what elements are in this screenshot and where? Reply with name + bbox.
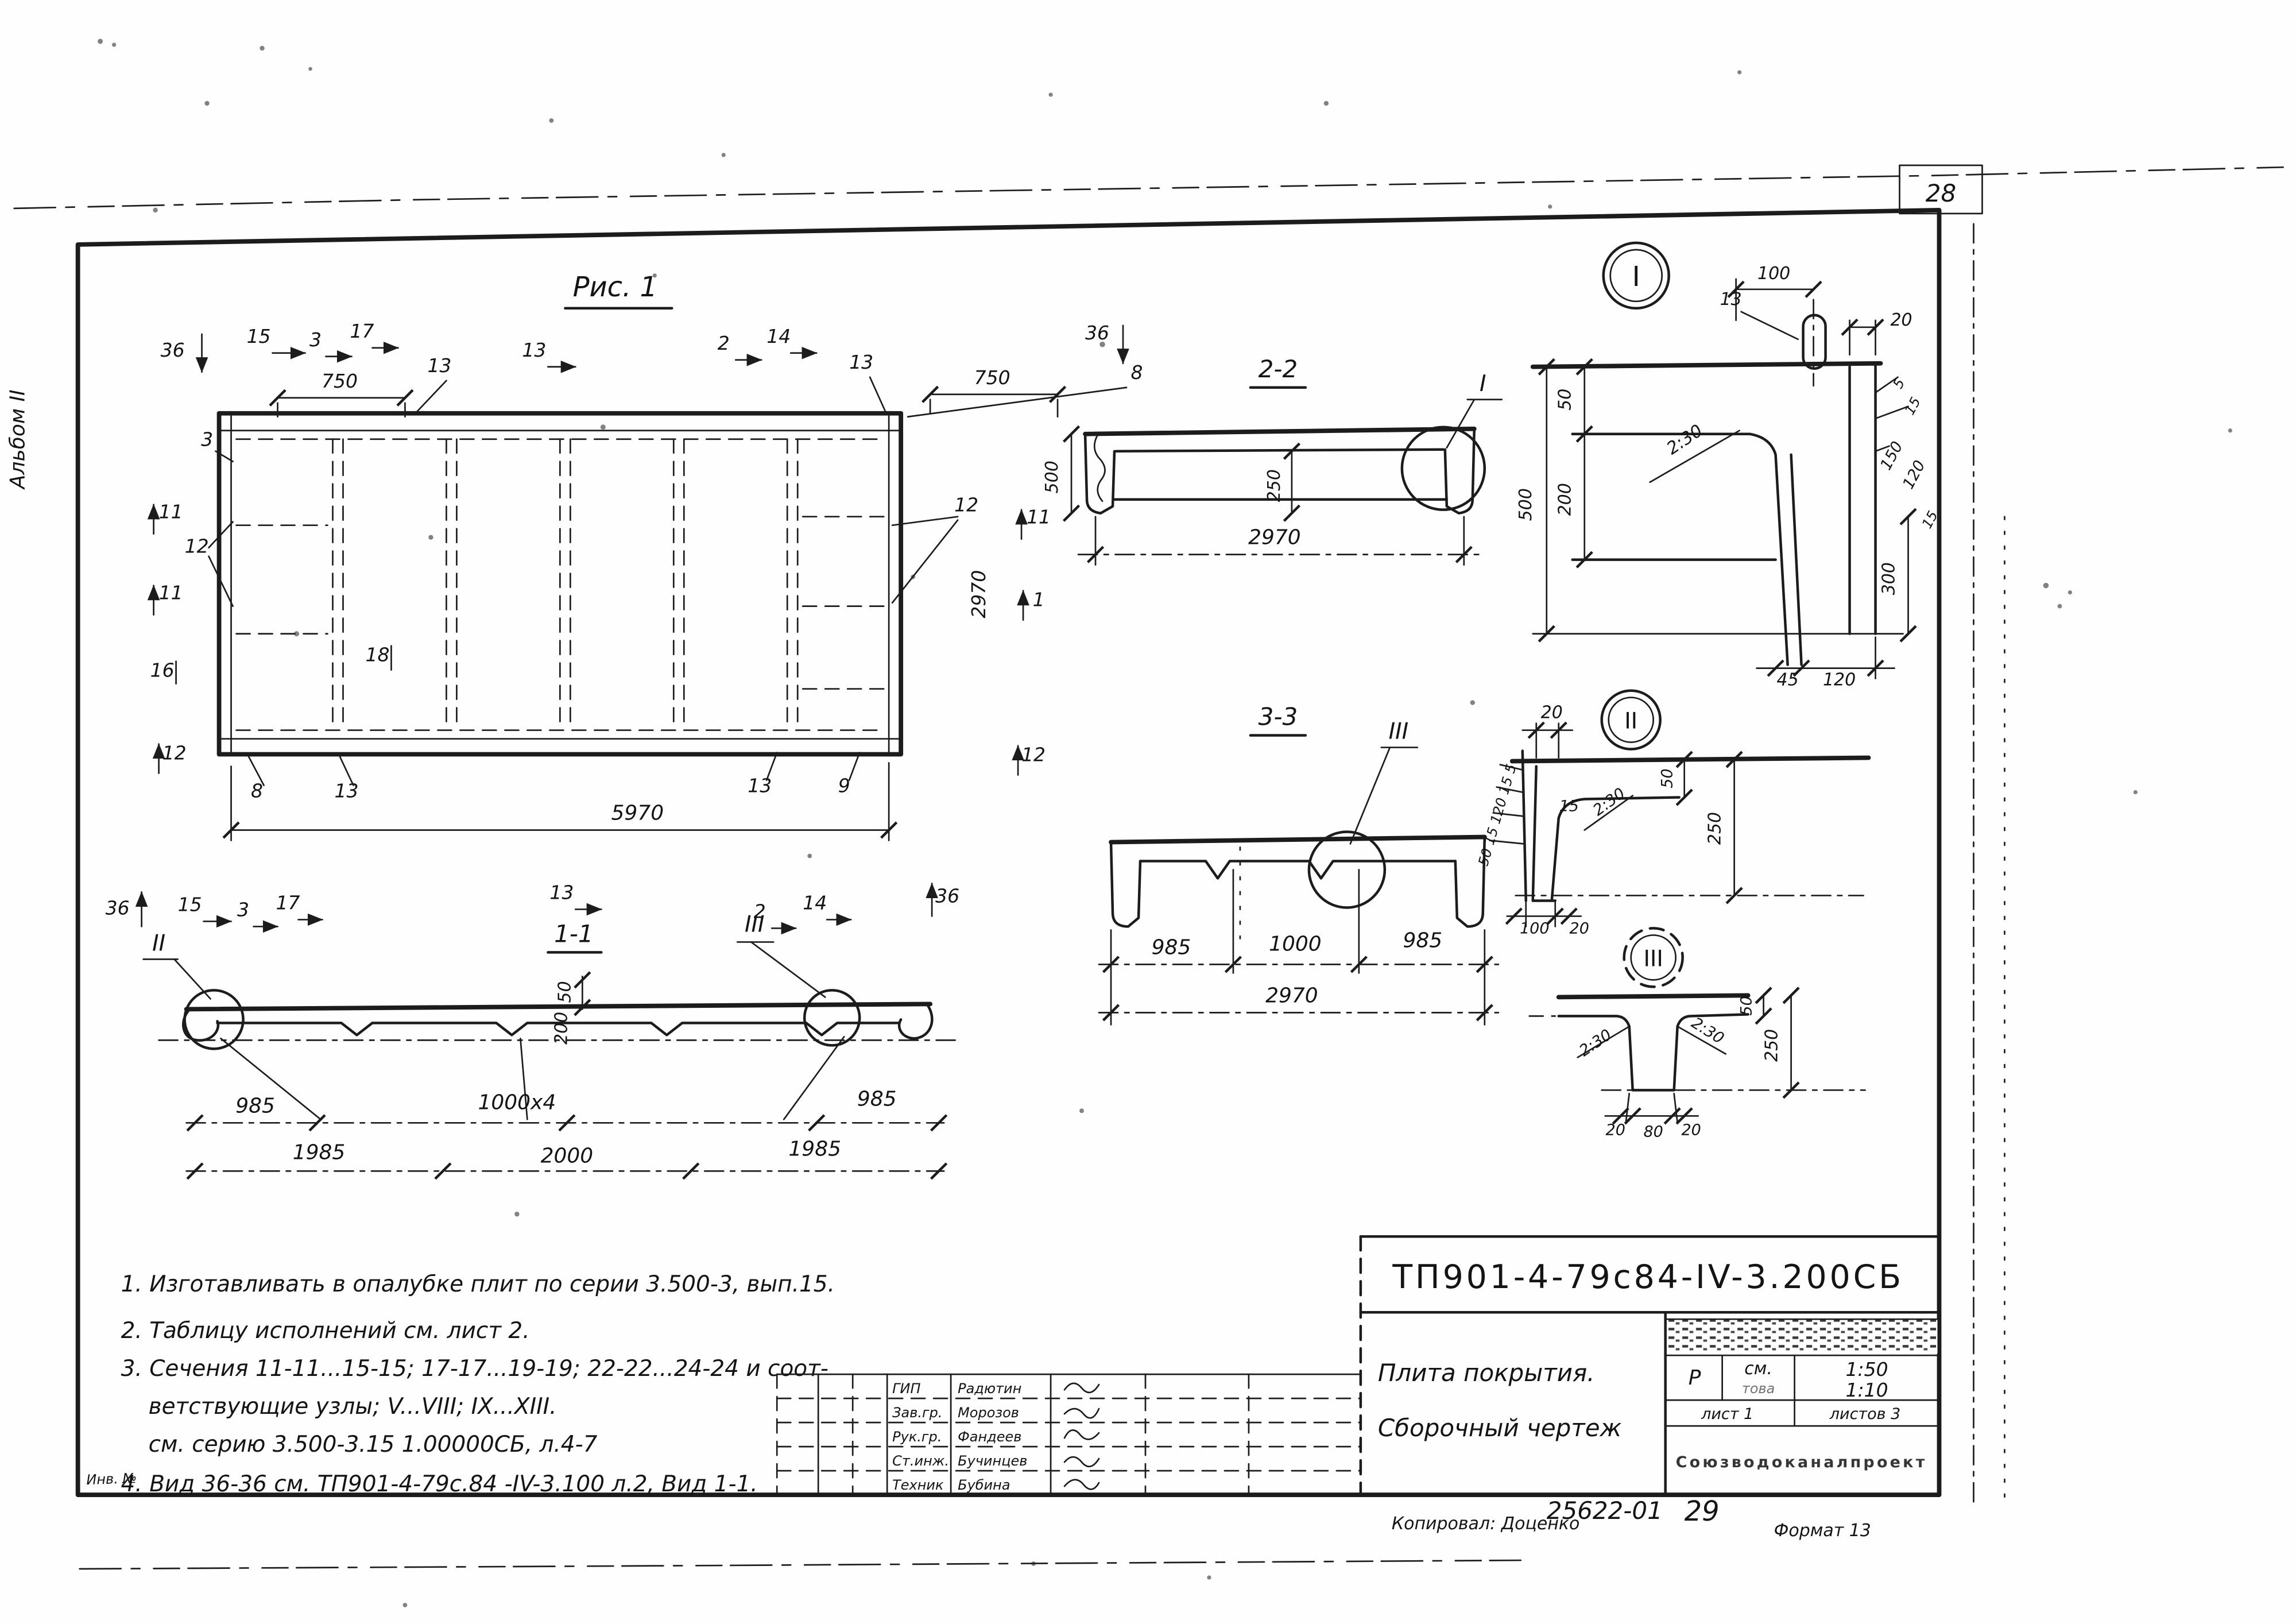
plan-ribs: [237, 439, 884, 730]
scale-note: см.: [1744, 1359, 1772, 1379]
section-mark: 36: [161, 339, 185, 361]
stage-cell: Р: [1689, 1366, 1701, 1390]
detail-title: I: [1632, 261, 1640, 293]
section-mark: 17: [350, 320, 374, 342]
section-mark: 15: [178, 893, 202, 915]
section-mark: 11: [1027, 506, 1051, 528]
plan-right-marks: 12 2970 11 1 12: [892, 494, 1051, 775]
section-mark: 11: [159, 501, 183, 523]
plan-view: Рис. 1 36 15 3 17: [106, 271, 1143, 929]
detail-callout: III: [1389, 719, 1408, 745]
dim-label: 2000: [541, 1144, 594, 1167]
section-mark: 1: [1033, 589, 1045, 611]
dim-label: 15: [1559, 798, 1579, 815]
dim-label: 500: [1516, 488, 1536, 521]
dim-label: 1000х4: [478, 1091, 556, 1114]
pos-label: 13: [335, 780, 359, 802]
dim-label: 985: [857, 1087, 897, 1111]
signature-role: Рук.гр.: [892, 1429, 942, 1445]
signature-name: Бубина: [958, 1477, 1010, 1493]
signature-name: Радютин: [958, 1381, 1021, 1397]
signature-scribble: [1064, 1480, 1099, 1490]
section-mark: 3: [237, 898, 249, 921]
dim-label: 985: [1403, 929, 1443, 952]
detail-iii: III 2:30 2:30 50 250 20 80 20: [1530, 928, 1865, 1140]
signature-role: Зав.гр.: [892, 1405, 942, 1421]
pos-label: 16: [150, 659, 175, 682]
stamp-header-strip: [1667, 1319, 1938, 1354]
section-mark: 2: [718, 332, 730, 354]
section-mark: 36: [935, 884, 959, 907]
pos-label: 18: [365, 644, 389, 666]
detail-title: III: [1643, 946, 1663, 972]
dim-label: 20: [1541, 703, 1563, 723]
detail-callout: III: [745, 911, 764, 937]
dim-label: 120: [1823, 670, 1856, 690]
sheets-cell: листов 3: [1829, 1405, 1900, 1423]
signature-role: Техник: [892, 1477, 944, 1493]
detail-callout: I: [1480, 371, 1486, 397]
dim-label: 1000: [1269, 932, 1322, 956]
section-mark: 14: [803, 891, 827, 914]
dim-label: 2970: [967, 570, 990, 618]
signature-scribble: [1064, 1430, 1099, 1439]
signature-name: Фандеев: [958, 1429, 1021, 1445]
dim-label: 300: [1879, 562, 1899, 595]
section-2-2: 2-2 I 500 250 2970: [1042, 355, 1502, 565]
pos-label: 3: [201, 428, 213, 451]
drawing-name-line1: Плита покрытия.: [1378, 1359, 1595, 1387]
footer: Копировал: Доценко 25622-01 29 Формат 13: [1392, 1495, 1871, 1541]
dim-label: 50: [1659, 768, 1676, 788]
pos-label: 13: [849, 351, 873, 373]
title-block: ТП901-4-79с84-IV-3.200СБ Плита покрытия.…: [1361, 1236, 1939, 1495]
scale-value-1: 1:50: [1846, 1358, 1888, 1381]
section-title: 2-2: [1259, 355, 1298, 383]
dim-label: 50: [1555, 389, 1575, 411]
detail-i: I 13 100 20 50 200 500 2:30 5 15: [1516, 243, 1941, 690]
dim-label: 100: [1757, 264, 1790, 284]
detail-callout: II: [152, 930, 165, 956]
dim-label: 750: [322, 370, 358, 392]
note-line: 2. Таблицу исполнений см. лист 2.: [121, 1318, 530, 1344]
pos-label: 13: [1720, 289, 1742, 310]
dim-label: 5: [1890, 376, 1908, 392]
dim-label: 2970: [1265, 984, 1318, 1007]
detail-title: II: [1624, 709, 1637, 734]
slope-label: 2:30: [1688, 1014, 1727, 1047]
dim-label: 45: [1777, 670, 1799, 690]
note-line: 1. Изготавливать в опалубке плит по сери…: [121, 1271, 835, 1297]
pos-label: 8: [1131, 361, 1143, 384]
drawing-designation: ТП901-4-79с84-IV-3.200СБ: [1392, 1258, 1904, 1296]
pos-label: 13: [427, 354, 451, 377]
note-line: 4. Вид 36-36 см. ТП901-4-79с.84 -IV-3.10…: [121, 1471, 758, 1497]
lifting-loop: [1803, 315, 1826, 369]
dim-label: 1985: [788, 1137, 841, 1161]
dim-label: 985: [1152, 935, 1191, 959]
order-number: 25622-01: [1547, 1497, 1663, 1525]
signature-role: Ст.инж.: [892, 1453, 949, 1469]
section-mark: 11: [159, 582, 183, 604]
section-mark: 3: [309, 328, 322, 351]
note-line: см. серию 3.500-3.15 1.00000СБ, л.4-7: [149, 1432, 598, 1457]
dim-label: 500: [1042, 461, 1062, 493]
notes-block: 1. Изготавливать в опалубке плит по сери…: [86, 1271, 835, 1497]
dim-label: 80: [1644, 1123, 1663, 1140]
signature-scribble: [1064, 1383, 1099, 1393]
section-mark: 14: [766, 325, 791, 347]
drawing-canvas: 28 Альбом II Рис. 1: [0, 0, 2296, 1624]
album-label: Альбом II: [6, 389, 30, 490]
section-3-3: 3-3 III 985 1000 985 2970: [1099, 703, 1499, 1025]
page-number-top: 28: [1926, 179, 1956, 207]
detail-ii: II 20 50 15 120 15 5 15 2:30 50 250 100 …: [1475, 691, 1868, 938]
plan-left-marks: 3 11 12 11 16 12 18: [150, 428, 392, 774]
section-mark: 13: [549, 881, 574, 903]
signature-scribble: [1064, 1409, 1099, 1418]
dim-label: 250: [1264, 469, 1284, 502]
dim-label: 20: [1681, 1121, 1701, 1139]
section-mark: 36: [1085, 322, 1109, 344]
detail-circle-III: [804, 990, 859, 1045]
dim-label: 250: [1705, 812, 1725, 845]
section-mark: 12: [162, 742, 187, 764]
dim-label: 985: [235, 1094, 275, 1118]
signature-table: ГИП Радютин Зав.гр. Морозов Рук.гр. Фанд…: [777, 1374, 1361, 1495]
dim-label: 200: [1555, 483, 1575, 516]
slope-label: 2:30: [1590, 784, 1628, 819]
dim-label: 100: [1520, 919, 1550, 937]
section-mark: 12: [1021, 744, 1046, 766]
dim-label: 20: [1570, 919, 1589, 937]
dim-label: 20: [1890, 310, 1912, 330]
blueprint-sheet: 28 Альбом II Рис. 1: [0, 0, 2296, 1624]
pos-label: 13: [522, 339, 546, 361]
drawing-name-line2: Сборочный чертеж: [1378, 1414, 1622, 1442]
section-title: 3-3: [1259, 703, 1298, 731]
pos-label: 12: [185, 535, 209, 558]
signature-scribble: [1064, 1457, 1099, 1467]
dim-label: 200: [551, 1012, 571, 1045]
format-label: Формат 13: [1774, 1521, 1871, 1541]
figure-title: Рис. 1: [573, 271, 658, 303]
dim-label: 50: [555, 981, 575, 1003]
note-line: 3. Сечения 11-11...15-15; 17-17...19-19;…: [121, 1356, 828, 1382]
section-title: 1-1: [554, 919, 594, 948]
plan-top-marks: 36 15 3 17 750 13 13 2 14 13 750: [161, 320, 1143, 417]
dim-label: 2970: [1248, 526, 1301, 550]
section-mark: 17: [276, 891, 300, 914]
inventory-label: Инв. №: [86, 1470, 137, 1488]
dim-label: 15: [1902, 395, 1924, 417]
pos-label: 8: [251, 780, 263, 802]
torn-bottom-edge: [80, 1560, 1521, 1569]
scale-value-2: 1:10: [1846, 1379, 1888, 1401]
plan-bottom-marks: 8 13 13 9 5970 36 15 3 17 13 2 14: [106, 753, 959, 929]
dim-label: 20: [1606, 1121, 1625, 1139]
signature-rows: ГИП Радютин Зав.гр. Морозов Рук.гр. Фанд…: [892, 1381, 1099, 1493]
signature-name: Бучинцев: [958, 1453, 1027, 1469]
signature-role: ГИП: [892, 1381, 920, 1397]
dim-label: 150: [1877, 439, 1907, 473]
section-mark: 15: [247, 325, 271, 347]
note-line: ветствующие узлы; V...VIII; IX...XIII.: [149, 1394, 557, 1420]
dim-label: 1985: [293, 1140, 346, 1164]
dim-label: 250: [1762, 1029, 1782, 1062]
dim-label: 50: [1738, 996, 1756, 1015]
pos-label: 12: [954, 494, 978, 516]
detail-circle-III: [1309, 832, 1385, 907]
pos-label: 9: [838, 775, 850, 797]
dim-label: 750: [974, 366, 1010, 389]
dim-label: 120: [1899, 458, 1929, 492]
signature-name: Морозов: [958, 1405, 1019, 1421]
section-1-1: 1-1 II III 50 200 985 1000х4 985 1985 20…: [144, 911, 958, 1178]
scale-note2: това: [1742, 1381, 1775, 1397]
organization-name: Союзводоканалпроект: [1676, 1453, 1927, 1471]
sheet-page-number: 29: [1685, 1495, 1720, 1528]
dim-label: 5970: [611, 801, 664, 825]
section-mark: 36: [106, 896, 130, 919]
sheet-cell: лист 1: [1701, 1405, 1753, 1423]
